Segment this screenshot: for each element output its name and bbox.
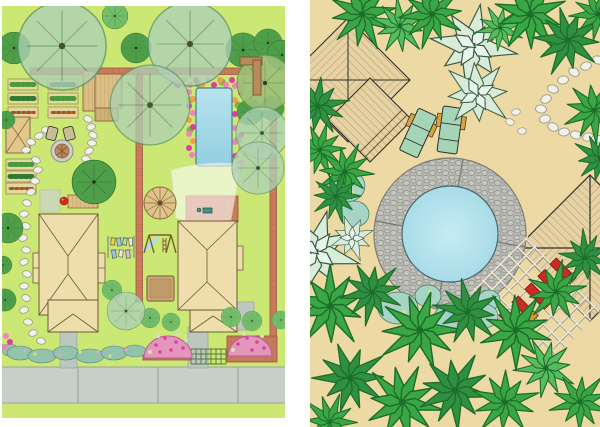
left-plan-illustration [2, 6, 285, 418]
sandbox [147, 276, 174, 301]
red-ball [60, 197, 68, 205]
garden-table [203, 208, 212, 213]
patio-slab [40, 190, 60, 212]
pool-water [402, 186, 498, 282]
right-plan-illustration [310, 0, 600, 427]
sidewalk [2, 367, 285, 403]
shade-sail [171, 163, 241, 224]
parasol [144, 187, 176, 219]
house-left [33, 214, 105, 332]
swimming-pond [196, 88, 232, 166]
canvas [0, 0, 600, 427]
